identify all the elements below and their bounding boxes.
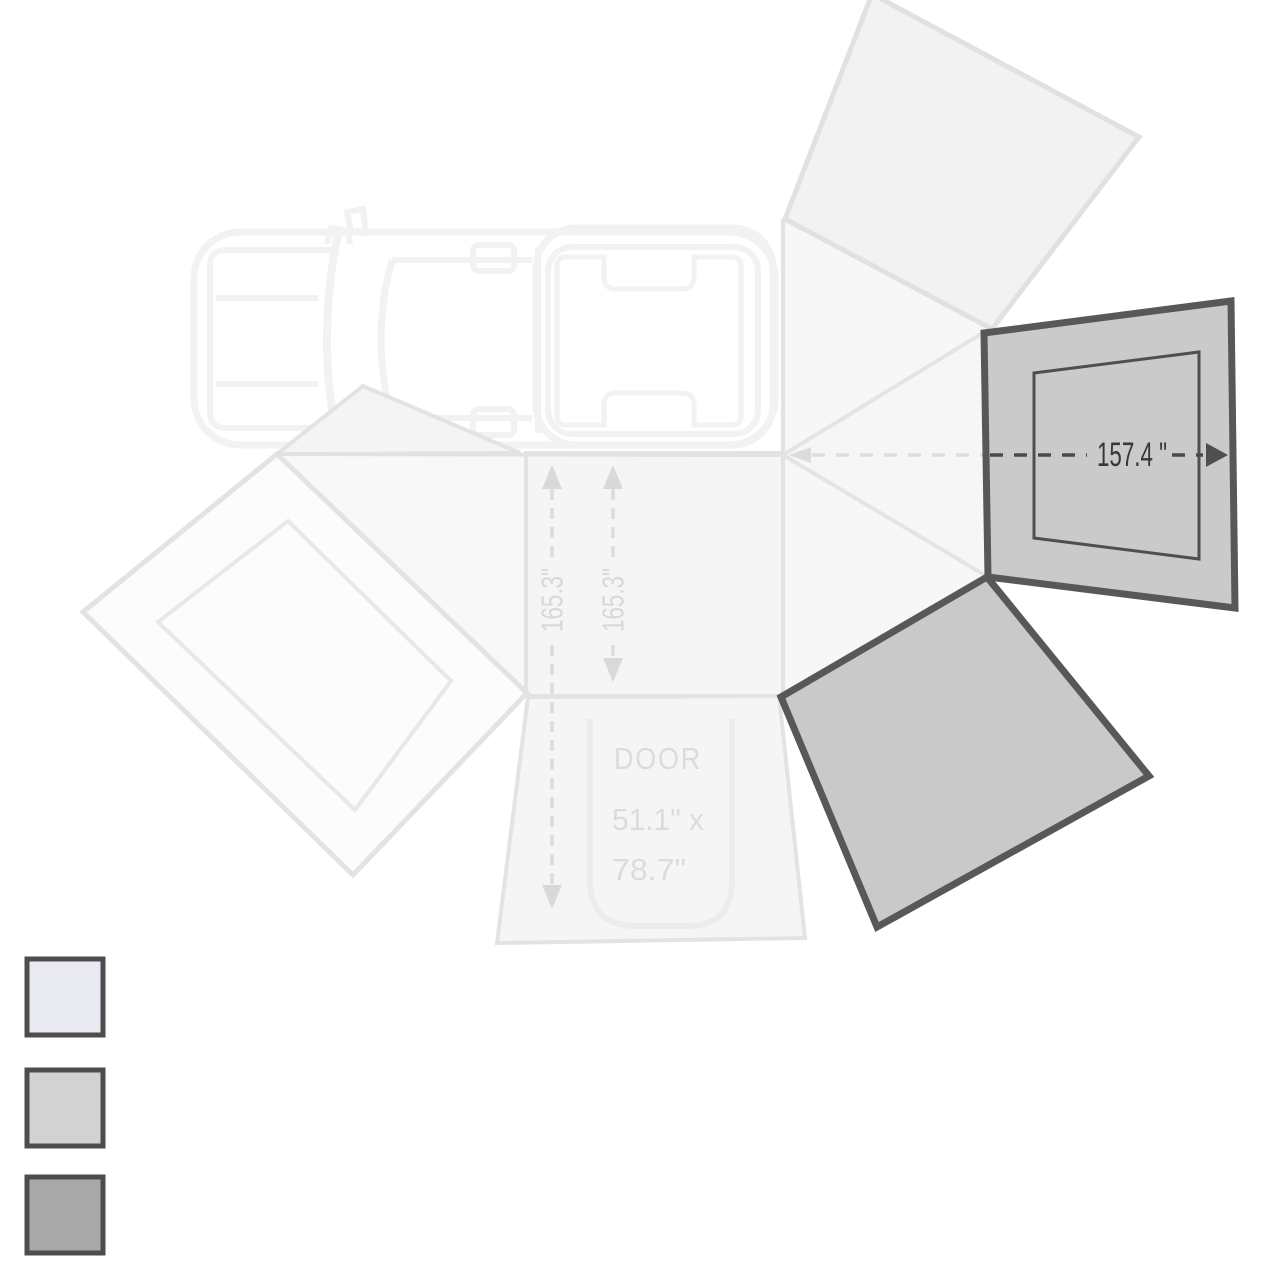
svg-text:51.1" x: 51.1" x [612,802,704,837]
svg-text:165.3": 165.3" [596,568,631,632]
svg-text:165.3": 165.3" [535,568,570,632]
svg-text:DOOR: DOOR [614,741,702,776]
svg-text:78.7": 78.7" [612,852,686,887]
svg-text:157.4 ": 157.4 " [1097,436,1167,474]
